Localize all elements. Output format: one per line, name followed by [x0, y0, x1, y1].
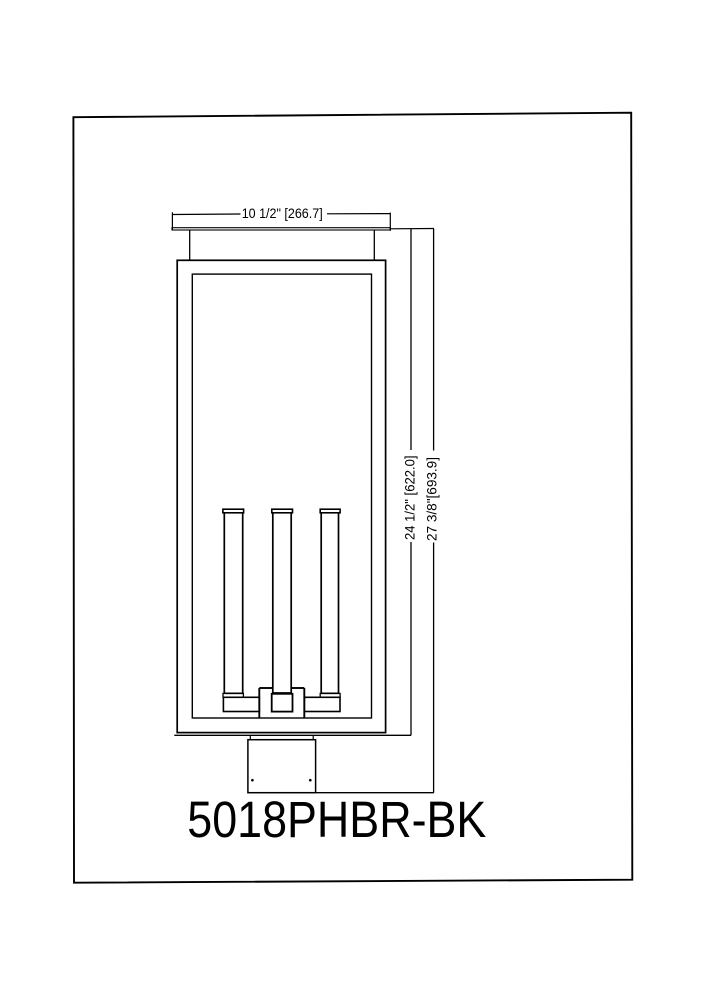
svg-text:10 1/2" [266.7]: 10 1/2" [266.7]	[242, 205, 323, 221]
svg-text:5018PHBR-BK: 5018PHBR-BK	[187, 791, 486, 848]
svg-text:24 1/2" [622.0]: 24 1/2" [622.0]	[402, 456, 418, 541]
svg-text:27 3/8"[693.9]: 27 3/8"[693.9]	[423, 457, 439, 541]
